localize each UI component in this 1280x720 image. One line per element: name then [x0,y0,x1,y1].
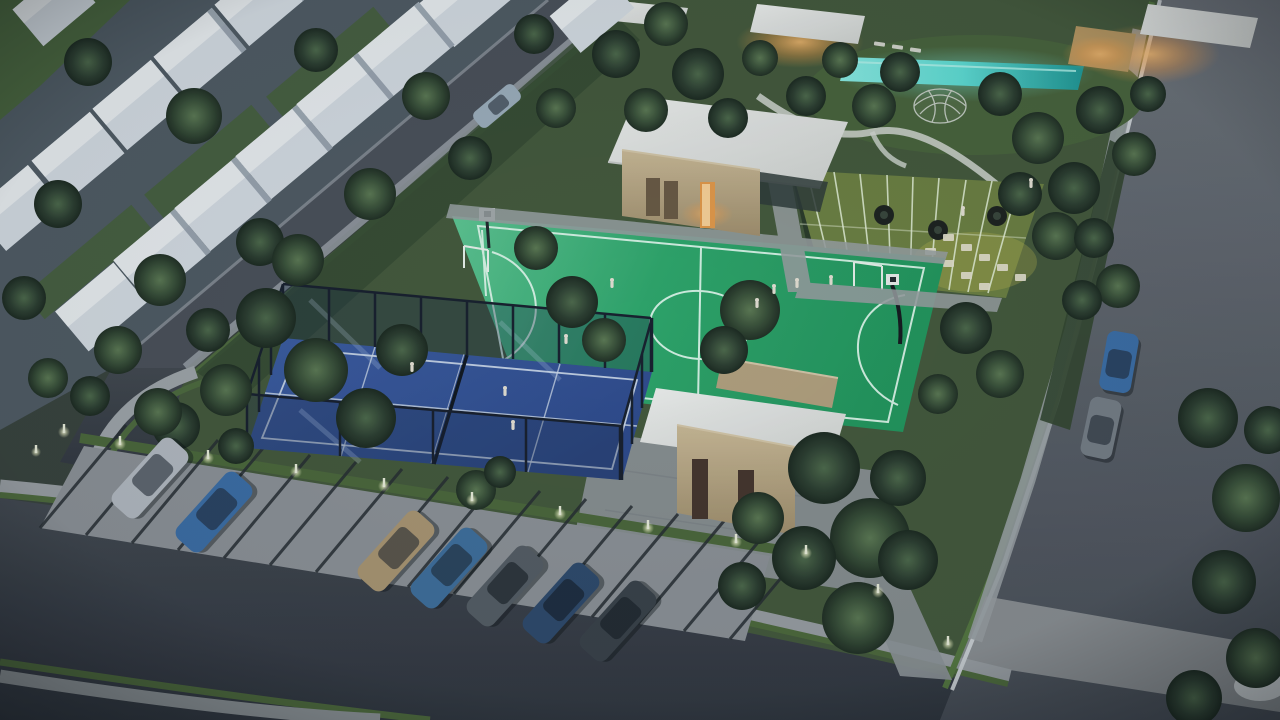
vignette [0,0,1280,720]
aerial-community-render [0,0,1280,720]
render-canvas [0,0,1280,720]
